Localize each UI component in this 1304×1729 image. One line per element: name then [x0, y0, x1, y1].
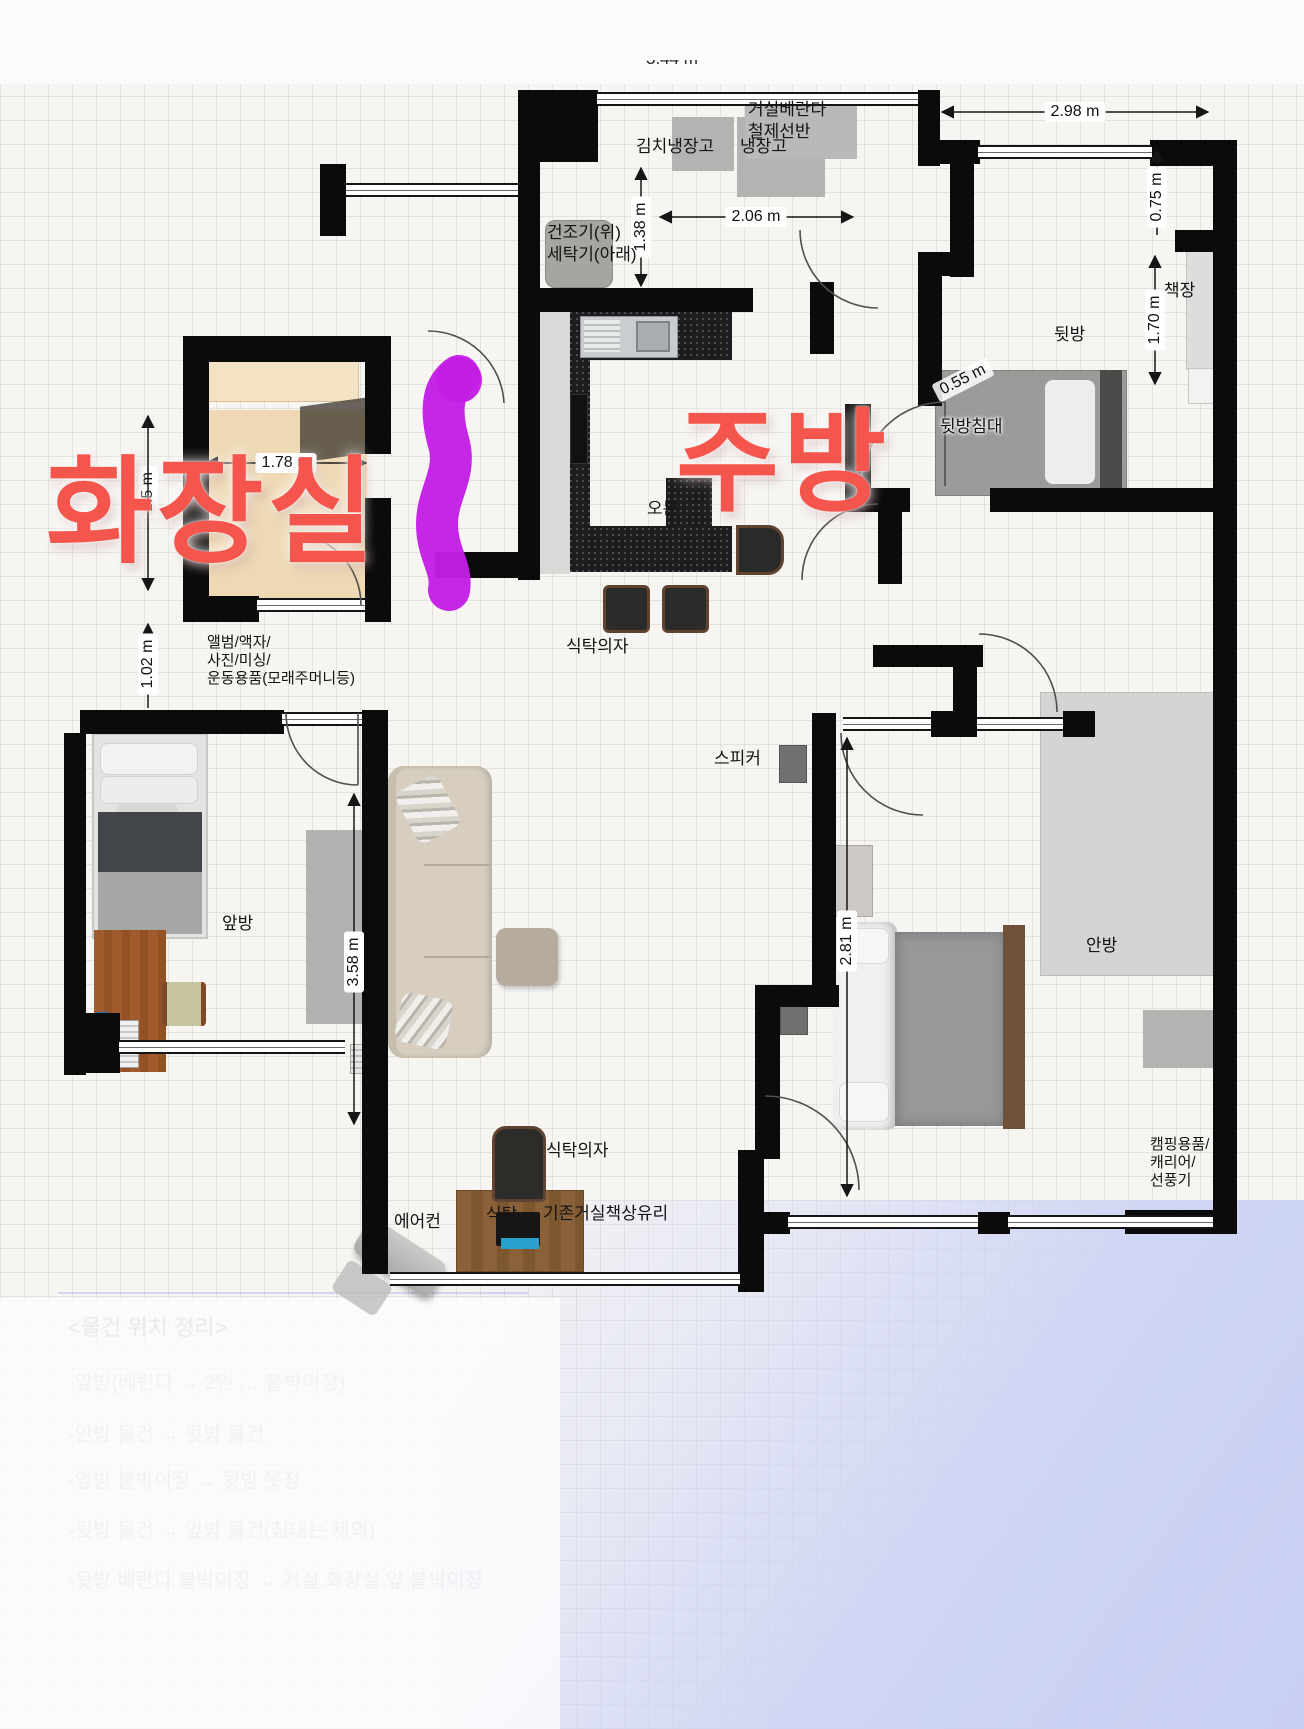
dimension-label: 2.06 m: [726, 207, 787, 227]
wall: [918, 140, 980, 164]
clipped-dimension-label: 3.44 m: [646, 60, 732, 76]
sofa-seam: [424, 956, 490, 958]
kimchi-fridge-label: 김치냉장고: [636, 136, 714, 158]
speaker-label: 스피커: [714, 748, 761, 770]
balcony-shelf-label: 거실베란다: [748, 99, 826, 121]
window: [390, 1272, 740, 1286]
kitchen-annotation: 주방: [676, 372, 890, 534]
wardrobe: [306, 830, 362, 1024]
wall: [1150, 140, 1215, 166]
desk-chair: [162, 982, 206, 1026]
laundry-label: 세탁기(아래): [547, 244, 637, 266]
dimension-label: 2.98 m: [1045, 102, 1106, 122]
wall: [931, 711, 977, 737]
ottoman-table: [496, 928, 558, 986]
dimension-label: 1.02 m: [138, 634, 158, 695]
wall: [755, 985, 780, 1159]
pillow: [100, 776, 198, 804]
bed-blanket-light: [98, 872, 202, 934]
wall: [518, 90, 598, 162]
wall: [80, 710, 284, 734]
dining-chairs-label: 식탁의자: [566, 636, 629, 658]
pillow: [100, 743, 198, 775]
bathtub: [205, 358, 359, 402]
dining-chair: [492, 1126, 546, 1202]
cooktop: [570, 394, 588, 464]
faded-note-line: -뒷방 물건 → 앞방 물건(침대는 제외): [68, 1514, 375, 1543]
window: [788, 1215, 978, 1229]
wall: [990, 488, 1215, 512]
wall: [764, 1212, 790, 1234]
storage-note-label: 앨범/액자/: [207, 634, 271, 653]
wall: [1213, 140, 1237, 1234]
dining-chair-label: 식탁의자: [546, 1140, 609, 1162]
window: [1008, 1215, 1213, 1229]
floor-plan: <물건 위치 정리> -앞방(베란다 → 2인 … 붙박이장) -안방 물건 →…: [0, 0, 1304, 1729]
camping-label: 선풍기: [1150, 1172, 1191, 1191]
dining-stool: [662, 585, 709, 633]
dresser: [833, 845, 873, 917]
window: [346, 183, 518, 197]
wall: [810, 282, 834, 354]
wall: [518, 288, 540, 580]
wall: [64, 1013, 120, 1073]
laundry-label: 건조기(위): [547, 222, 621, 244]
wall: [738, 1150, 764, 1292]
sofa-pillow: [393, 991, 454, 1051]
front-room-label: 앞방: [222, 913, 253, 935]
wall: [320, 164, 346, 236]
faded-note-line: -안방 물건 → 뒷방 물건: [68, 1418, 264, 1447]
aircon-label: 에어컨: [394, 1211, 441, 1233]
pillow: [839, 1082, 889, 1122]
sink-drainboard: [584, 320, 620, 352]
faded-note-line: -앞방(베란다 → 2인 … 붙박이장): [68, 1366, 345, 1395]
wall: [365, 596, 391, 622]
magenta-marker-head: [436, 357, 482, 403]
camping-label: 캐리어/: [1150, 1154, 1196, 1173]
wall: [362, 710, 388, 1274]
speaker-box: [779, 745, 807, 783]
bookshelf-label: 책장: [1164, 280, 1195, 302]
door-arc-hall-bathroom: [428, 331, 504, 403]
faded-note-line: -뒷방 베란다 붙박이장 → 거실 화장실 앞 붙박이장: [68, 1564, 483, 1593]
sofa-seam: [424, 864, 490, 866]
wall: [953, 646, 977, 716]
window: [843, 717, 931, 731]
back-bed-label: 뒷방침대: [940, 416, 1003, 438]
dimension-label: 1.70 m: [1145, 290, 1165, 351]
master-bed-blanket: [895, 932, 1005, 1126]
window: [119, 1040, 345, 1054]
balcony-shelf-label: 철제선반: [748, 121, 811, 143]
window: [257, 598, 365, 612]
camping-label: 캠핑용품/: [1150, 1136, 1209, 1155]
faded-note-line: -앞방 붙박이장 → 뒷방 옷장: [68, 1464, 301, 1493]
dining-stool: [603, 585, 650, 633]
dimension-label: 3.58 m: [344, 932, 364, 993]
master-bed-frame: [1003, 925, 1025, 1129]
laptop-label: [501, 1238, 539, 1249]
bathroom-annotation: 화장실: [46, 418, 378, 586]
wall: [1175, 230, 1215, 252]
window: [978, 145, 1152, 159]
oven-label: 오븐: [647, 498, 678, 520]
back-bed-pillow: [1045, 380, 1095, 484]
dimension-label: 2.81 m: [837, 911, 857, 972]
camping-gear-box: [1143, 1010, 1213, 1068]
wall: [978, 1212, 1010, 1234]
back-bed-frame: [1100, 370, 1122, 494]
dimension-label: 0.75 m: [1147, 167, 1167, 228]
wall: [1063, 711, 1095, 737]
table-label: 식탁: [486, 1204, 517, 1226]
faded-note-heading: <물건 위치 정리>: [68, 1310, 227, 1342]
table-note-label: 기존거실책상유리: [543, 1203, 668, 1225]
door-arc-master: [841, 733, 923, 815]
wall: [183, 596, 259, 622]
kitchen-tall-cabinet: [538, 312, 570, 574]
wall: [523, 288, 753, 312]
sink-basin: [636, 321, 670, 352]
wall: [518, 162, 540, 290]
wall: [183, 336, 391, 362]
overlay-edge-line: [58, 1292, 528, 1294]
window: [282, 712, 362, 726]
bed-blanket-dark: [98, 812, 202, 872]
back-room-label: 뒷방: [1054, 324, 1085, 346]
storage-note-label: 운동용품(모래주머니등): [207, 670, 355, 689]
storage-note-label: 사진/미싱/: [207, 652, 271, 671]
wall: [812, 713, 836, 989]
window: [977, 717, 1063, 731]
master-room-label: 안방: [1086, 935, 1117, 957]
